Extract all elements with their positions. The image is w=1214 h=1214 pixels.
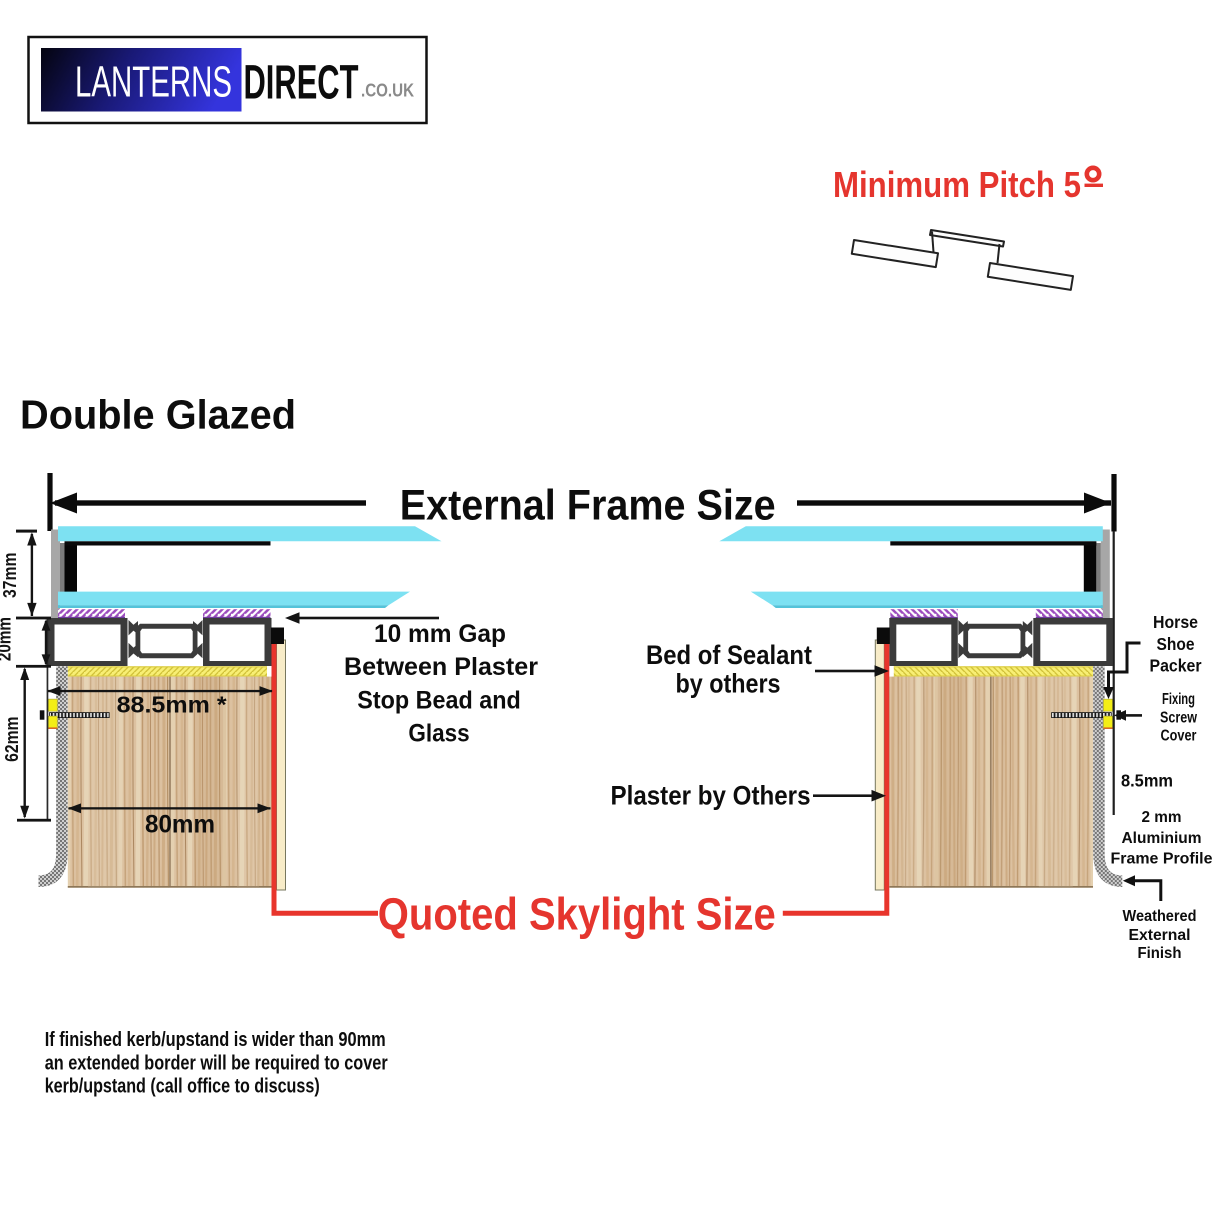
svg-text:Shoe: Shoe — [1157, 634, 1195, 654]
svg-text:kerb/upstand (call office to d: kerb/upstand (call office to discuss) — [45, 1075, 320, 1097]
svg-text:88.5mm *: 88.5mm * — [117, 692, 227, 718]
svg-text:Between Plaster: Between Plaster — [344, 653, 538, 681]
svg-text:Stop Bead and: Stop Bead and — [357, 686, 521, 714]
svg-text:an extended border will be req: an extended border will be required to c… — [45, 1052, 388, 1074]
svg-text:Quoted Skylight Size: Quoted Skylight Size — [378, 889, 776, 940]
svg-text:2 mm: 2 mm — [1142, 809, 1182, 826]
svg-text:Frame Profile: Frame Profile — [1111, 851, 1213, 868]
svg-text:Cover: Cover — [1161, 728, 1197, 745]
svg-text:Horse: Horse — [1153, 612, 1198, 632]
svg-text:Plaster by Others: Plaster by Others — [611, 781, 811, 811]
svg-text:Fixing: Fixing — [1162, 691, 1195, 708]
svg-text:62mm: 62mm — [1, 717, 22, 762]
svg-text:37mm: 37mm — [0, 553, 20, 598]
svg-text:Bed of Sealant: Bed of Sealant — [646, 640, 812, 670]
svg-text:80mm: 80mm — [145, 811, 215, 839]
svg-text:Double Glazed: Double Glazed — [20, 391, 296, 437]
svg-text:External: External — [1129, 927, 1191, 944]
svg-text:Finish: Finish — [1138, 945, 1182, 962]
svg-text:Screw: Screw — [1160, 709, 1198, 726]
svg-text:Packer: Packer — [1150, 656, 1202, 676]
svg-text:8.5mm: 8.5mm — [1121, 771, 1173, 791]
svg-text:DIRECT: DIRECT — [244, 56, 359, 109]
svg-text:Minimum Pitch 5: Minimum Pitch 5 — [833, 164, 1081, 205]
svg-text:LANTERNS: LANTERNS — [75, 59, 232, 107]
svg-text:.CO.UK: .CO.UK — [361, 81, 414, 101]
svg-text:by others: by others — [676, 669, 781, 699]
svg-text:If finished kerb/upstand is wi: If finished kerb/upstand is wider than 9… — [45, 1029, 386, 1051]
svg-text:Aluminium: Aluminium — [1122, 830, 1202, 847]
svg-text:10 mm Gap: 10 mm Gap — [374, 620, 506, 648]
svg-text:External Frame Size: External Frame Size — [400, 482, 776, 530]
svg-text:Glass: Glass — [408, 720, 469, 748]
svg-text:20mm: 20mm — [0, 617, 15, 661]
svg-text:Weathered: Weathered — [1123, 908, 1197, 925]
